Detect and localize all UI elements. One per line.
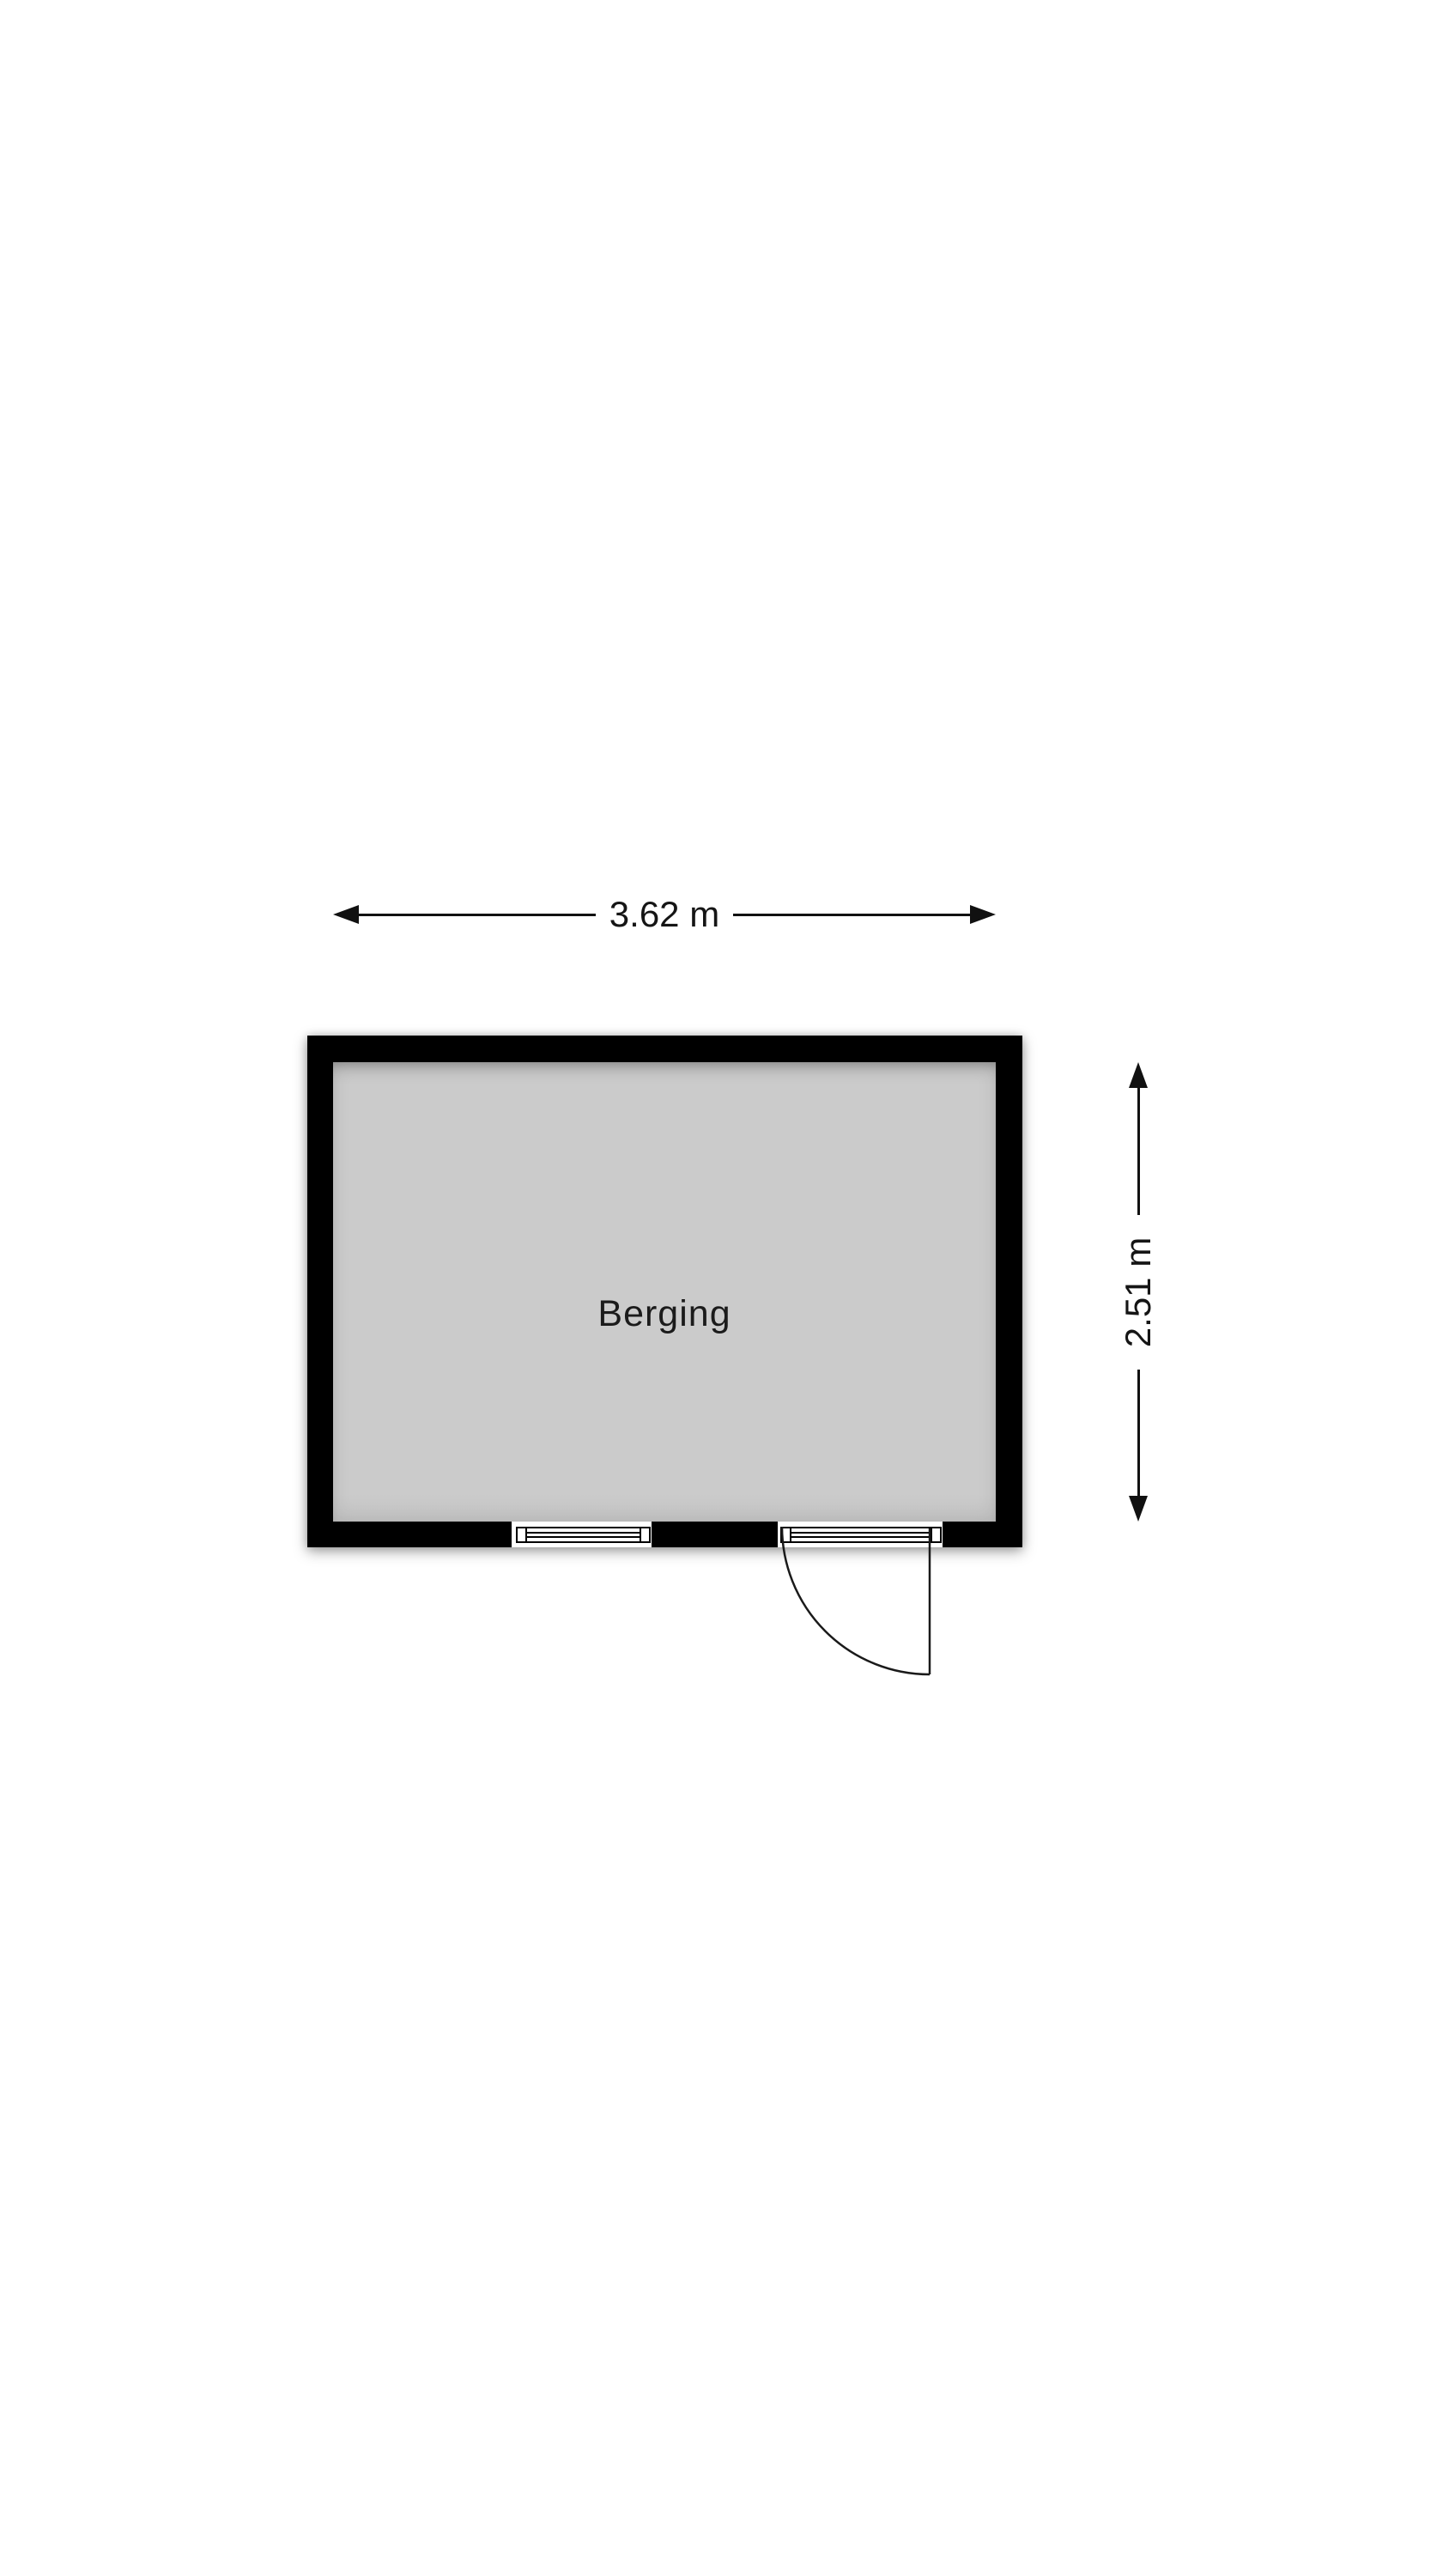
- dimension-line-left: [359, 914, 596, 916]
- height-dimension-label-wrap: 2.51 m: [1119, 1215, 1158, 1370]
- window-pane-line: [527, 1536, 640, 1538]
- window-end-cap: [782, 1528, 791, 1541]
- width-dimension-label: 3.62 m: [609, 896, 719, 933]
- floorplan-page: 3.62 m Berging: [0, 0, 1449, 2576]
- arrow-left-icon: [333, 905, 359, 924]
- door-opening: [778, 1522, 943, 1547]
- window-pane-line: [791, 1536, 931, 1538]
- height-dimension: 2.51 m: [1119, 1062, 1158, 1522]
- floorplan-room-berging: Berging: [307, 1036, 1022, 1547]
- arrow-up-icon: [1129, 1062, 1148, 1088]
- height-dimension-label: 2.51 m: [1120, 1236, 1156, 1346]
- window-pane-line: [527, 1532, 640, 1534]
- dimension-line-bottom: [1137, 1370, 1140, 1497]
- window-opening-left: [512, 1522, 652, 1547]
- arrow-right-icon: [970, 905, 996, 924]
- window-pane-line: [791, 1532, 931, 1534]
- window-panes: [527, 1528, 640, 1541]
- dimension-line-right: [733, 914, 970, 916]
- window-end-cap: [640, 1528, 649, 1541]
- window-icon: [516, 1527, 651, 1543]
- window-panes: [791, 1528, 931, 1541]
- window-end-cap: [518, 1528, 527, 1541]
- room-label: Berging: [597, 1296, 731, 1333]
- dimension-line-top: [1137, 1088, 1140, 1215]
- room-label-layer: Berging: [333, 1062, 996, 1522]
- width-dimension: 3.62 m: [333, 896, 996, 933]
- arrow-down-icon: [1129, 1496, 1148, 1522]
- door-swing-arc: [782, 1527, 930, 1674]
- window-end-cap: [931, 1528, 940, 1541]
- glazed-door-icon: [780, 1527, 942, 1543]
